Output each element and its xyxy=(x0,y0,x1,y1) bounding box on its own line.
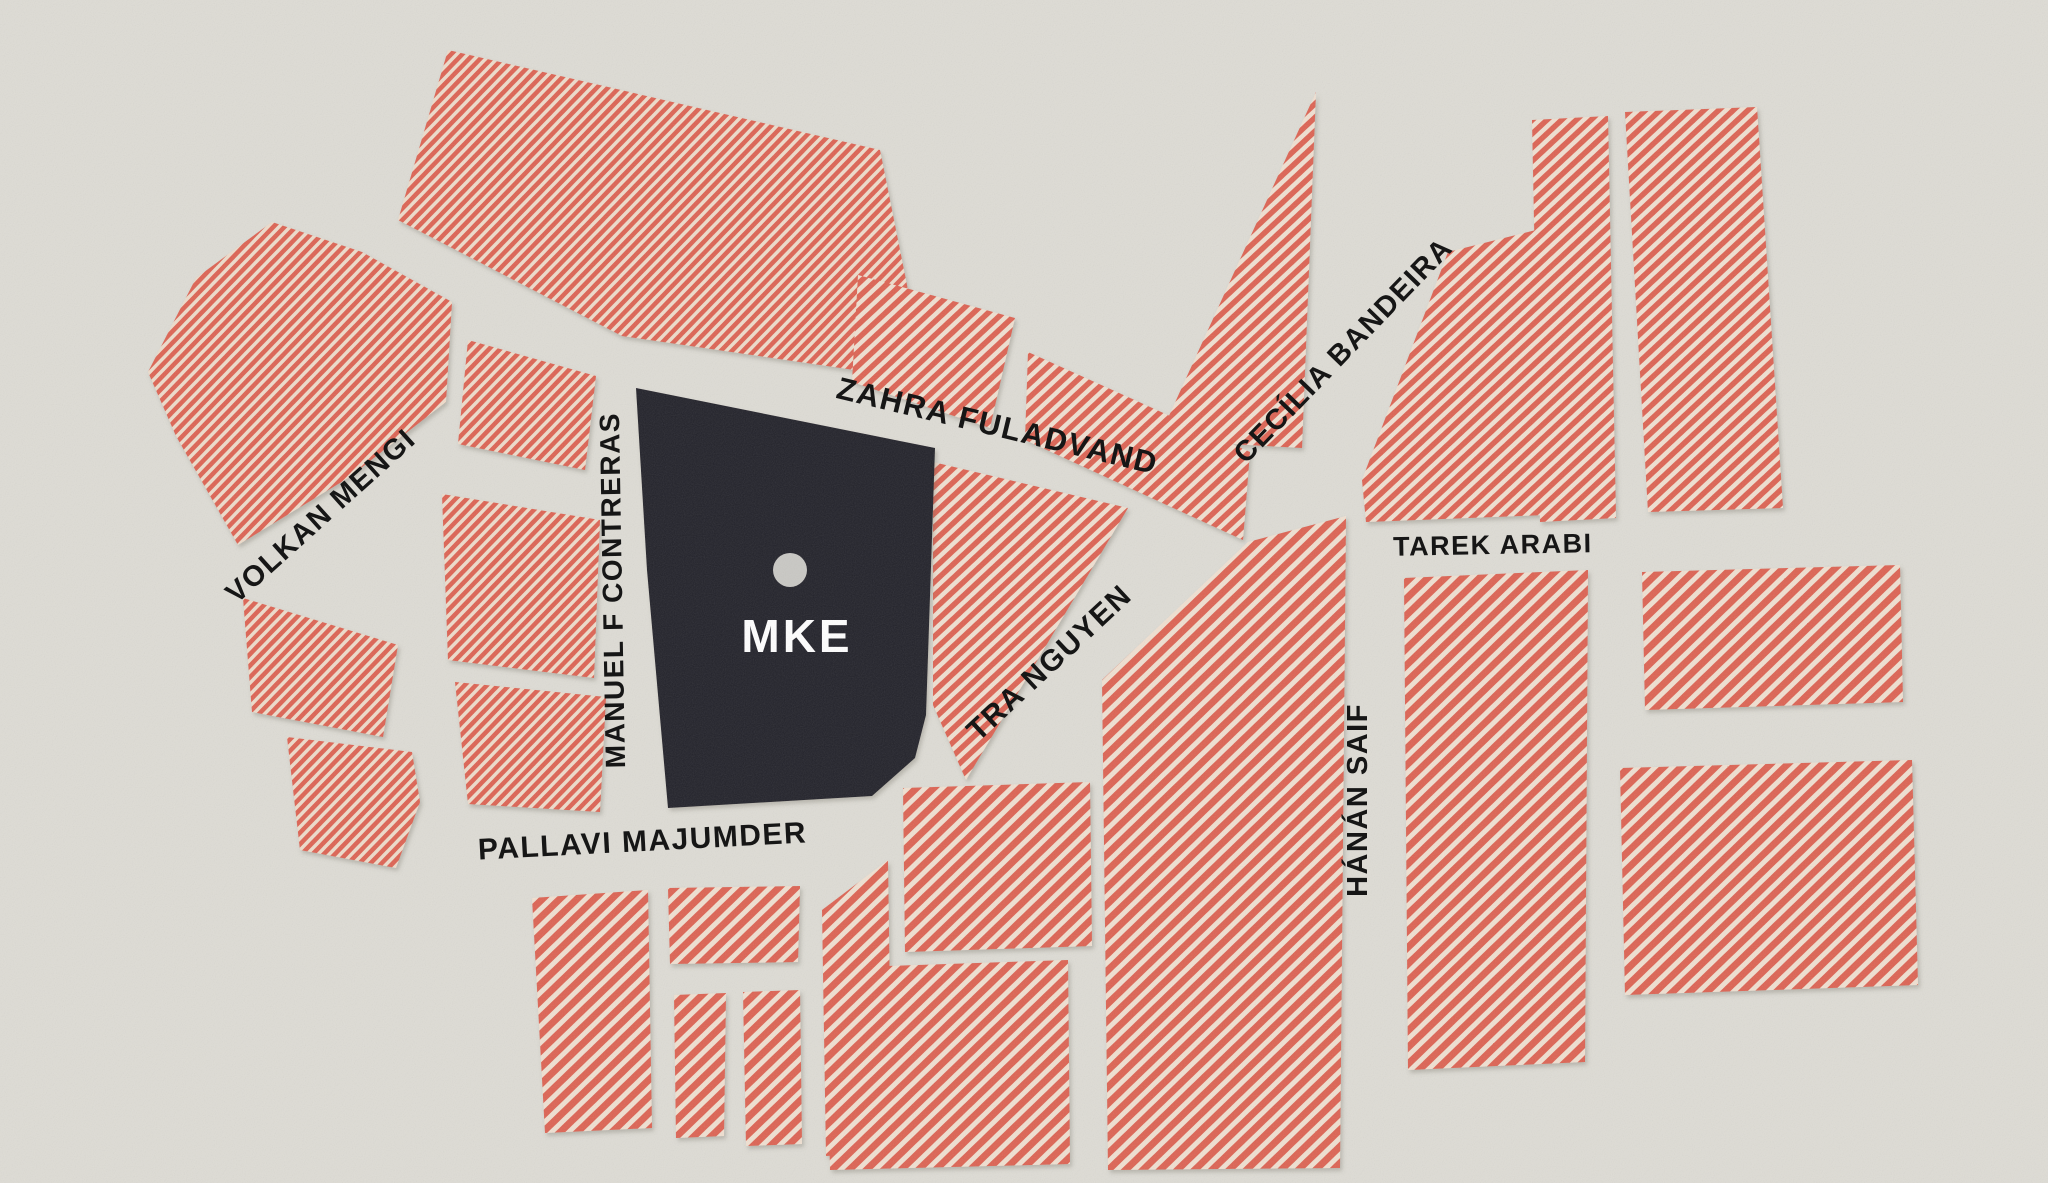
street-label-hanan-saif: HÁNÁN SAIF xyxy=(1340,703,1374,897)
street-label-manuel-f-contreras: MANUEL F CONTRERAS xyxy=(594,412,631,769)
street-label-tarek-arabi: TAREK ARABI xyxy=(1393,528,1593,561)
paper-texture-overlay xyxy=(0,0,2048,1183)
map-stage: MKE VOLKAN MENGIMANUEL F CONTRERASZAHRA … xyxy=(0,0,2048,1183)
city-map: MKE VOLKAN MENGIMANUEL F CONTRERASZAHRA … xyxy=(0,0,2048,1183)
